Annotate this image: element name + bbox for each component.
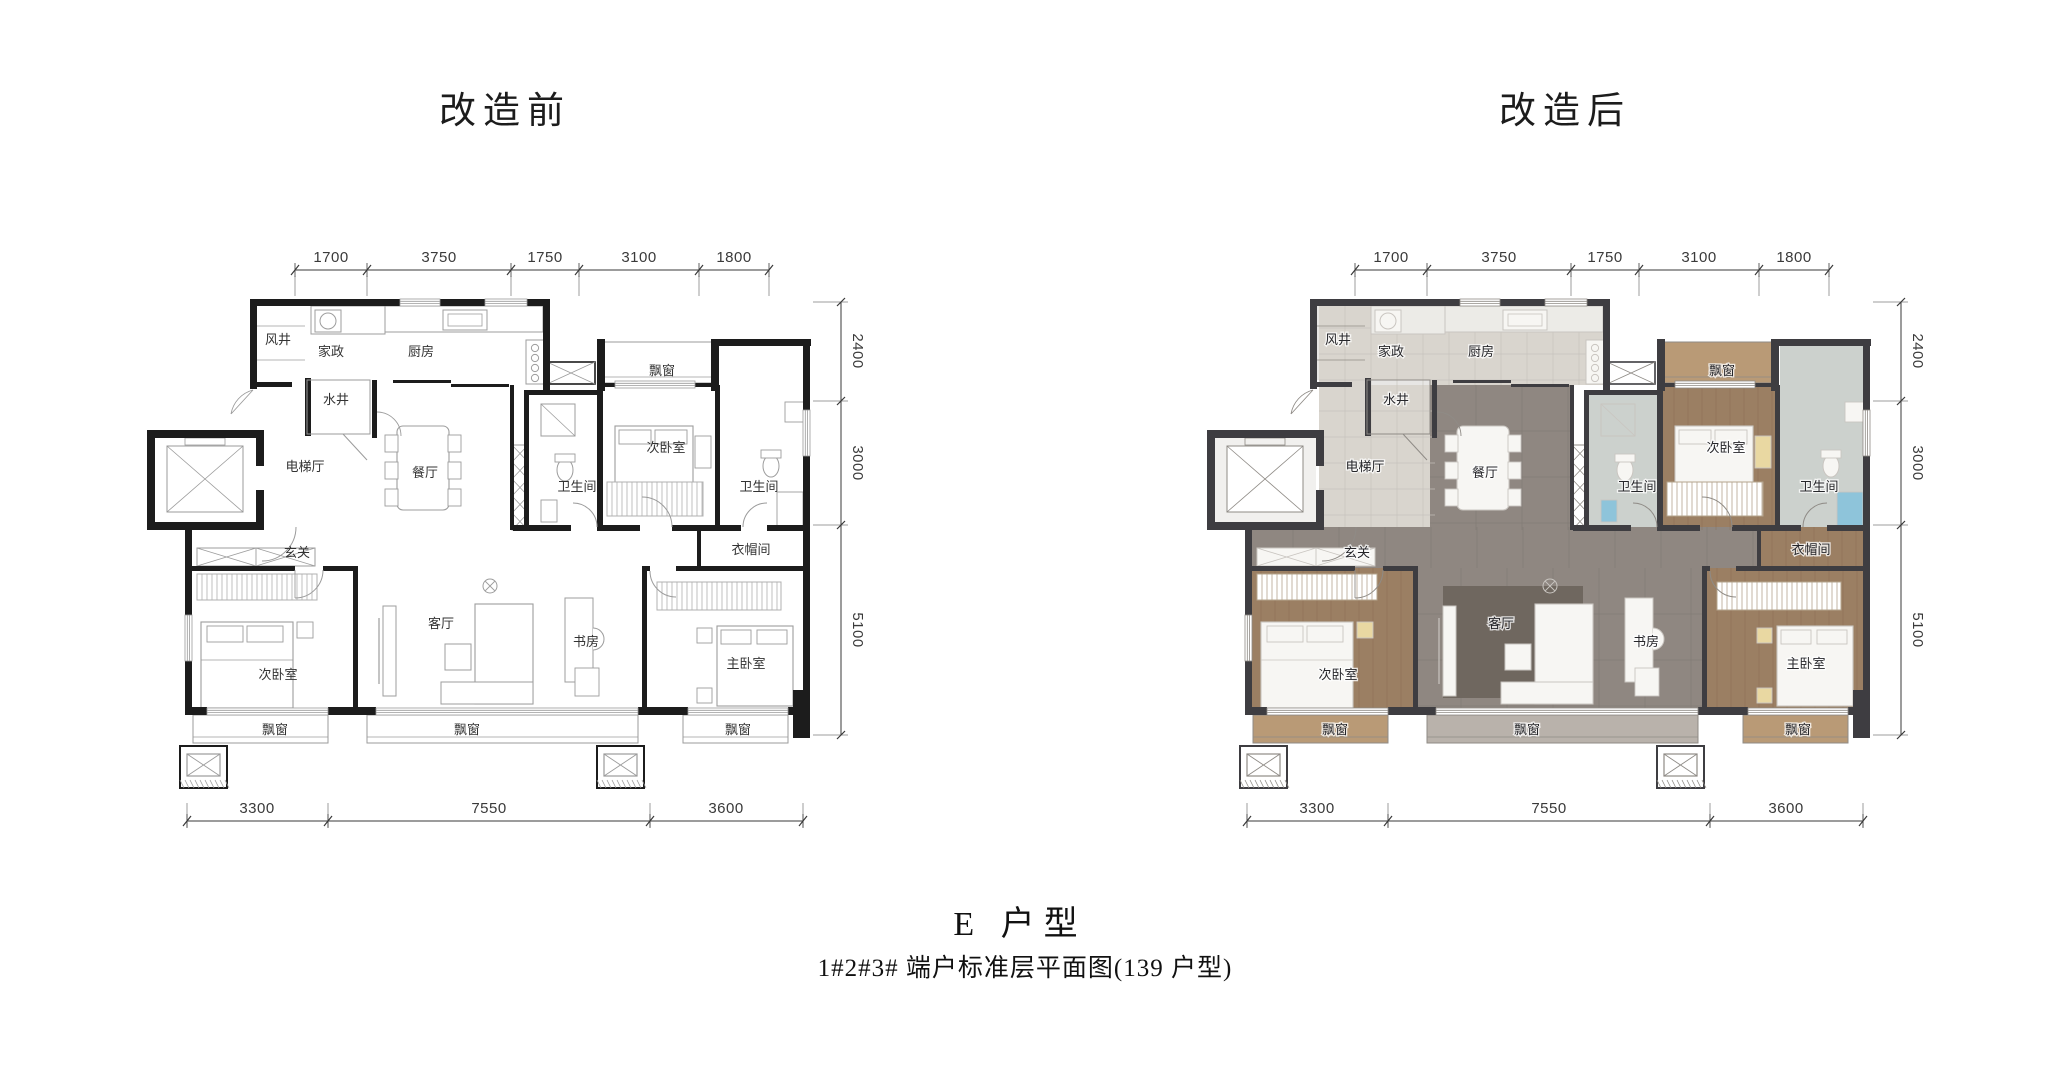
plan-caption: 1#2#3# 端户标准层平面图(139 户型) (725, 948, 1325, 984)
dim-right-0: 2400 (1909, 333, 1925, 368)
room-label-bay-bl: 飘窗 (262, 722, 288, 737)
room-label-cloakroom: 衣帽间 (731, 542, 770, 557)
dim-top-1: 3750 (421, 249, 456, 266)
room-label-bay-tr: 飘窗 (1709, 363, 1735, 378)
room-label-bay-tr: 飘窗 (649, 363, 675, 378)
room-label-study: 书房 (573, 634, 599, 649)
floor-plan-before: 风井家政厨房水井电梯厅餐厅玄关卫生间次卧室飘窗卫生间衣帽间书房主卧室客厅次卧室飘… (145, 230, 865, 850)
dim-top-3: 3100 (621, 249, 656, 266)
room-label-wind-shaft: 风井 (265, 332, 291, 347)
room-label-kitchen: 厨房 (408, 344, 434, 359)
room-label-living: 客厅 (428, 616, 454, 631)
room-label-bath-1: 卫生间 (1617, 479, 1656, 494)
room-label-elevator-hall: 电梯厅 (285, 459, 324, 474)
dim-top-0: 1700 (1373, 249, 1408, 266)
dim-top-0: 1700 (313, 249, 348, 266)
dim-top-2: 1750 (527, 249, 562, 266)
room-label-dining: 餐厅 (1472, 465, 1498, 480)
room-label-bay-bc: 飘窗 (454, 722, 480, 737)
room-label-master: 主卧室 (726, 656, 765, 671)
room-label-bedroom-2: 次卧室 (646, 440, 685, 455)
room-label-water-shaft: 水井 (323, 392, 349, 407)
after-title: 改造后 (1385, 80, 1745, 134)
room-label-dining: 餐厅 (412, 465, 438, 480)
dim-top-1: 3750 (1481, 249, 1516, 266)
room-label-bath-2: 卫生间 (739, 479, 778, 494)
room-label-bay-bc: 飘窗 (1514, 722, 1540, 737)
dim-top-2: 1750 (1587, 249, 1622, 266)
room-label-bath-2: 卫生间 (1799, 479, 1838, 494)
before-title: 改造前 (325, 80, 685, 134)
room-label-living: 客厅 (1488, 616, 1514, 631)
floor-plan-after: 风井家政厨房水井电梯厅餐厅玄关卫生间次卧室飘窗卫生间衣帽间书房主卧室客厅次卧室飘… (1205, 230, 1925, 850)
dim-right-0: 2400 (849, 333, 865, 368)
room-label-bay-br: 飘窗 (725, 722, 751, 737)
dim-bottom-0: 3300 (1299, 800, 1334, 817)
room-label-master: 主卧室 (1786, 656, 1825, 671)
room-label-foyer: 玄关 (1344, 545, 1370, 560)
room-label-study: 书房 (1633, 634, 1659, 649)
room-label-wind-shaft: 风井 (1325, 332, 1351, 347)
dim-bottom-2: 3600 (708, 800, 743, 817)
room-label-water-shaft: 水井 (1383, 392, 1409, 407)
dim-bottom-1: 7550 (1531, 800, 1566, 817)
unit-type-title: E 户型 (870, 896, 1170, 945)
dim-top-4: 1800 (1776, 249, 1811, 266)
dim-right-2: 5100 (1909, 612, 1925, 647)
dim-top-4: 1800 (716, 249, 751, 266)
dim-right-1: 3000 (849, 445, 865, 480)
floor-plan-comparison-page: 改造前 改造后 风井家政厨房水井电梯厅餐厅玄关卫生间次卧室飘窗卫生间衣帽间书房主… (0, 0, 2048, 1080)
dim-top-3: 3100 (1681, 249, 1716, 266)
room-label-foyer: 玄关 (284, 545, 310, 560)
dim-bottom-2: 3600 (1768, 800, 1803, 817)
dim-right-1: 3000 (1909, 445, 1925, 480)
room-label-bay-br: 飘窗 (1785, 722, 1811, 737)
room-label-bedroom-1: 次卧室 (1318, 667, 1357, 682)
room-label-elevator-hall: 电梯厅 (1345, 459, 1384, 474)
dim-bottom-0: 3300 (239, 800, 274, 817)
room-label-bedroom-1: 次卧室 (258, 667, 297, 682)
dim-right-2: 5100 (849, 612, 865, 647)
room-label-housekeeping: 家政 (318, 344, 344, 359)
dim-bottom-1: 7550 (471, 800, 506, 817)
room-label-housekeeping: 家政 (1378, 344, 1404, 359)
room-label-bedroom-2: 次卧室 (1706, 440, 1745, 455)
room-label-bath-1: 卫生间 (557, 479, 596, 494)
room-label-cloakroom: 衣帽间 (1791, 542, 1830, 557)
room-label-kitchen: 厨房 (1468, 344, 1494, 359)
room-label-bay-bl: 飘窗 (1322, 722, 1348, 737)
